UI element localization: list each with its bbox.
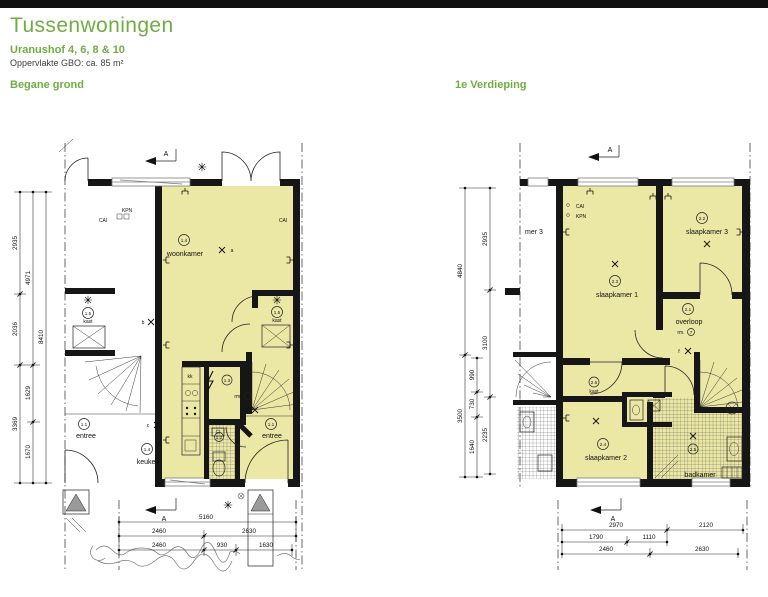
room-number: 1.1 <box>268 422 275 427</box>
floor-plan-canvas: A A 1.4 woonkamer a b c d 1.5 kast 1.5 k… <box>0 0 768 597</box>
light-point-icon <box>148 319 154 325</box>
room-name: slaapkamer 3 <box>686 229 728 236</box>
room-number: 1.1 <box>81 422 88 427</box>
room-name: badkamer <box>684 472 716 479</box>
svg-text:1640: 1640 <box>469 440 476 455</box>
neighbor-tile-floor <box>517 407 556 479</box>
svg-text:2970: 2970 <box>609 522 624 529</box>
svg-text:3500: 3500 <box>457 409 464 424</box>
section-arrow-bottom: A <box>590 498 621 523</box>
room-name: slaapkamer 1 <box>596 292 638 299</box>
outlet-label-kpn: KPN <box>122 208 133 214</box>
svg-text:1629: 1629 <box>25 386 32 401</box>
room-name: slaapkamer 2 <box>585 455 627 462</box>
svg-text:2235: 2235 <box>482 428 489 443</box>
section-arrow-top: A <box>588 145 619 161</box>
light-icon <box>198 163 206 171</box>
svg-text:2630: 2630 <box>242 528 257 535</box>
light-point-letter: b <box>142 320 145 326</box>
svg-text:1670: 1670 <box>25 445 32 460</box>
svg-text:3369: 3369 <box>12 417 19 432</box>
room-number: 2.2 <box>699 216 706 221</box>
svg-text:930: 930 <box>217 542 228 549</box>
room-number: 1.5 <box>85 311 92 316</box>
first-dims-bottom: 2970 2120 1790 1110 2460 2630 <box>561 522 745 558</box>
room-name: woonkamer <box>166 251 204 258</box>
svg-text:2460: 2460 <box>599 546 614 553</box>
room-name: entree <box>76 433 96 440</box>
light-icon <box>273 296 281 304</box>
section-arrow-top: A <box>145 149 176 165</box>
light-point-letter: c <box>147 423 150 429</box>
section-arrow-label: A <box>164 151 169 158</box>
svg-text:4840: 4840 <box>457 264 464 279</box>
outlet-label-kpn: KPN <box>576 214 587 220</box>
room-name: kast <box>589 389 599 395</box>
ground-floor-plan: A A 1.4 woonkamer a b c d 1.5 kast 1.5 k… <box>12 139 302 571</box>
svg-text:2036: 2036 <box>12 322 19 337</box>
window <box>112 178 190 186</box>
outlet-label-cai: CAI <box>576 204 584 210</box>
room-name: kast <box>83 319 93 325</box>
room-number: 1.3 <box>224 378 231 383</box>
window <box>165 478 210 486</box>
svg-text:1110: 1110 <box>642 534 656 541</box>
svg-text:4971: 4971 <box>25 271 32 286</box>
first-floor-plan: A A 2.3 slaapkamer 1 2.2 slaapkamer 3 2.… <box>457 143 750 570</box>
svg-text:2630: 2630 <box>695 546 710 553</box>
neighbor-stair <box>65 356 155 414</box>
outlet-label-cai: CAI <box>99 218 107 224</box>
svg-text:2460: 2460 <box>152 542 167 549</box>
svg-text:2935: 2935 <box>482 232 489 247</box>
room-number: 2.6 <box>591 380 598 385</box>
outlet-label-cai: CAI <box>279 218 287 224</box>
svg-text:730: 730 <box>469 398 476 409</box>
room-number: 2.1 <box>685 307 692 312</box>
room-number: 1.5 <box>274 310 281 315</box>
room-number: 1.2 <box>216 435 223 440</box>
badkamer-tile-floor <box>694 413 742 479</box>
light-icon <box>224 501 232 509</box>
switch-icon <box>238 493 244 499</box>
room-name: kast <box>272 318 282 324</box>
svg-text:2935: 2935 <box>12 236 19 251</box>
room-number: 1.4 <box>181 238 188 243</box>
light-icon <box>84 296 92 304</box>
french-door-arcs <box>222 152 280 181</box>
svg-text:3100: 3100 <box>482 336 489 351</box>
meter-number: 7 <box>690 330 693 335</box>
door-arc <box>65 450 98 483</box>
room-number: 2.4 <box>600 442 607 447</box>
svg-text:990: 990 <box>469 369 476 380</box>
light-point-letter: d <box>246 407 249 413</box>
neighbor-room-label: mer 3 <box>525 229 543 236</box>
meter-number: 7 <box>247 394 250 399</box>
meter-label: rm. <box>234 394 241 400</box>
ground-dims-bottom: 5160 2460 2630 2460 930 1630 <box>118 514 298 556</box>
light-point-letter: a <box>231 248 234 254</box>
svg-text:2120: 2120 <box>699 522 714 529</box>
door-arc <box>65 158 88 181</box>
meter-label: rm. <box>677 330 684 336</box>
room-name: entree <box>262 433 282 440</box>
ground-dims-left: 2935 2036 3369 4971 1629 1670 8410 <box>12 191 52 485</box>
section-arrow-bottom: A <box>145 498 176 523</box>
room-number: 2.3 <box>612 279 619 284</box>
svg-text:1630: 1630 <box>259 542 274 549</box>
section-arrow-label: A <box>608 147 613 154</box>
room-number: 1.4 <box>144 447 151 452</box>
svg-text:5160: 5160 <box>199 514 214 521</box>
svg-text:1790: 1790 <box>589 534 604 541</box>
room-name: overloop <box>676 319 703 326</box>
first-dims-left: 4840 3500 990 730 1640 2935 3100 2235 <box>457 187 496 479</box>
svg-text:2460: 2460 <box>152 528 167 535</box>
svg-text:8410: 8410 <box>38 330 45 345</box>
appliance-label-kk: kk <box>188 374 194 380</box>
room-number: 2.5 <box>690 447 697 452</box>
room-name: keuken <box>137 459 160 466</box>
